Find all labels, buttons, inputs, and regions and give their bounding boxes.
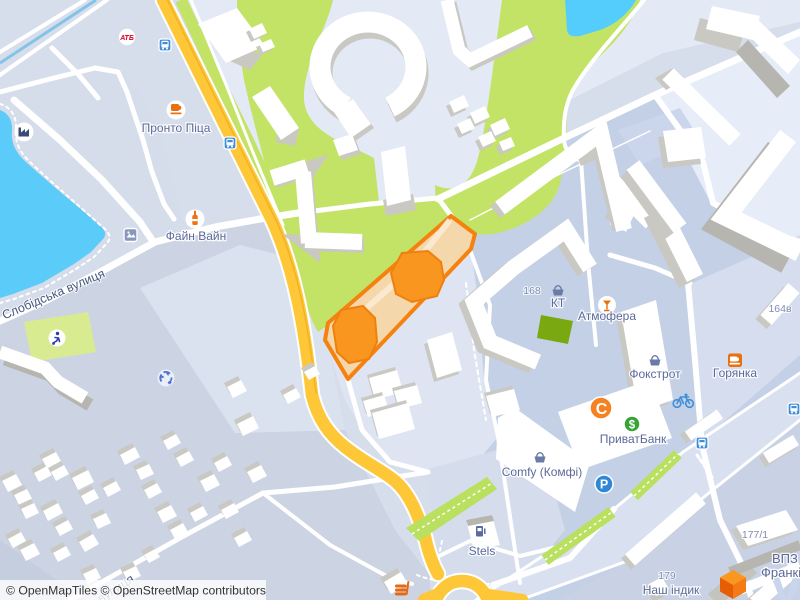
svg-text:Атмофера: Атмофера (578, 309, 636, 323)
svg-text:ВПЗ Мик: ВПЗ Мик (772, 551, 800, 566)
svg-text:168: 168 (523, 285, 541, 297)
svg-text:C: C (596, 401, 608, 418)
svg-text:АТБ: АТБ (119, 35, 134, 42)
svg-text:Франківс: Франківс (761, 565, 800, 580)
svg-text:КТ: КТ (551, 296, 566, 310)
svg-text:Фокстрот: Фокстрот (629, 367, 681, 381)
svg-text:$: $ (629, 420, 636, 432)
svg-text:Comfy (Комфі): Comfy (Комфі) (502, 465, 582, 479)
svg-text:ПриватБанк: ПриватБанк (600, 432, 667, 446)
svg-text:Файн Вайн: Файн Вайн (166, 229, 226, 243)
svg-text:164в: 164в (768, 303, 792, 315)
svg-text:Горянка: Горянка (713, 366, 758, 380)
svg-text:177/1: 177/1 (742, 529, 768, 541)
svg-text:179: 179 (658, 570, 676, 582)
svg-text:Stels: Stels (469, 544, 496, 558)
svg-text:Пронто Піца: Пронто Піца (142, 121, 211, 135)
svg-text:P: P (600, 478, 608, 492)
svg-text:© OpenMapTiles © OpenStreetMap: © OpenMapTiles © OpenStreetMap contribut… (6, 584, 266, 598)
svg-text:Наш індик: Наш індик (643, 583, 700, 597)
